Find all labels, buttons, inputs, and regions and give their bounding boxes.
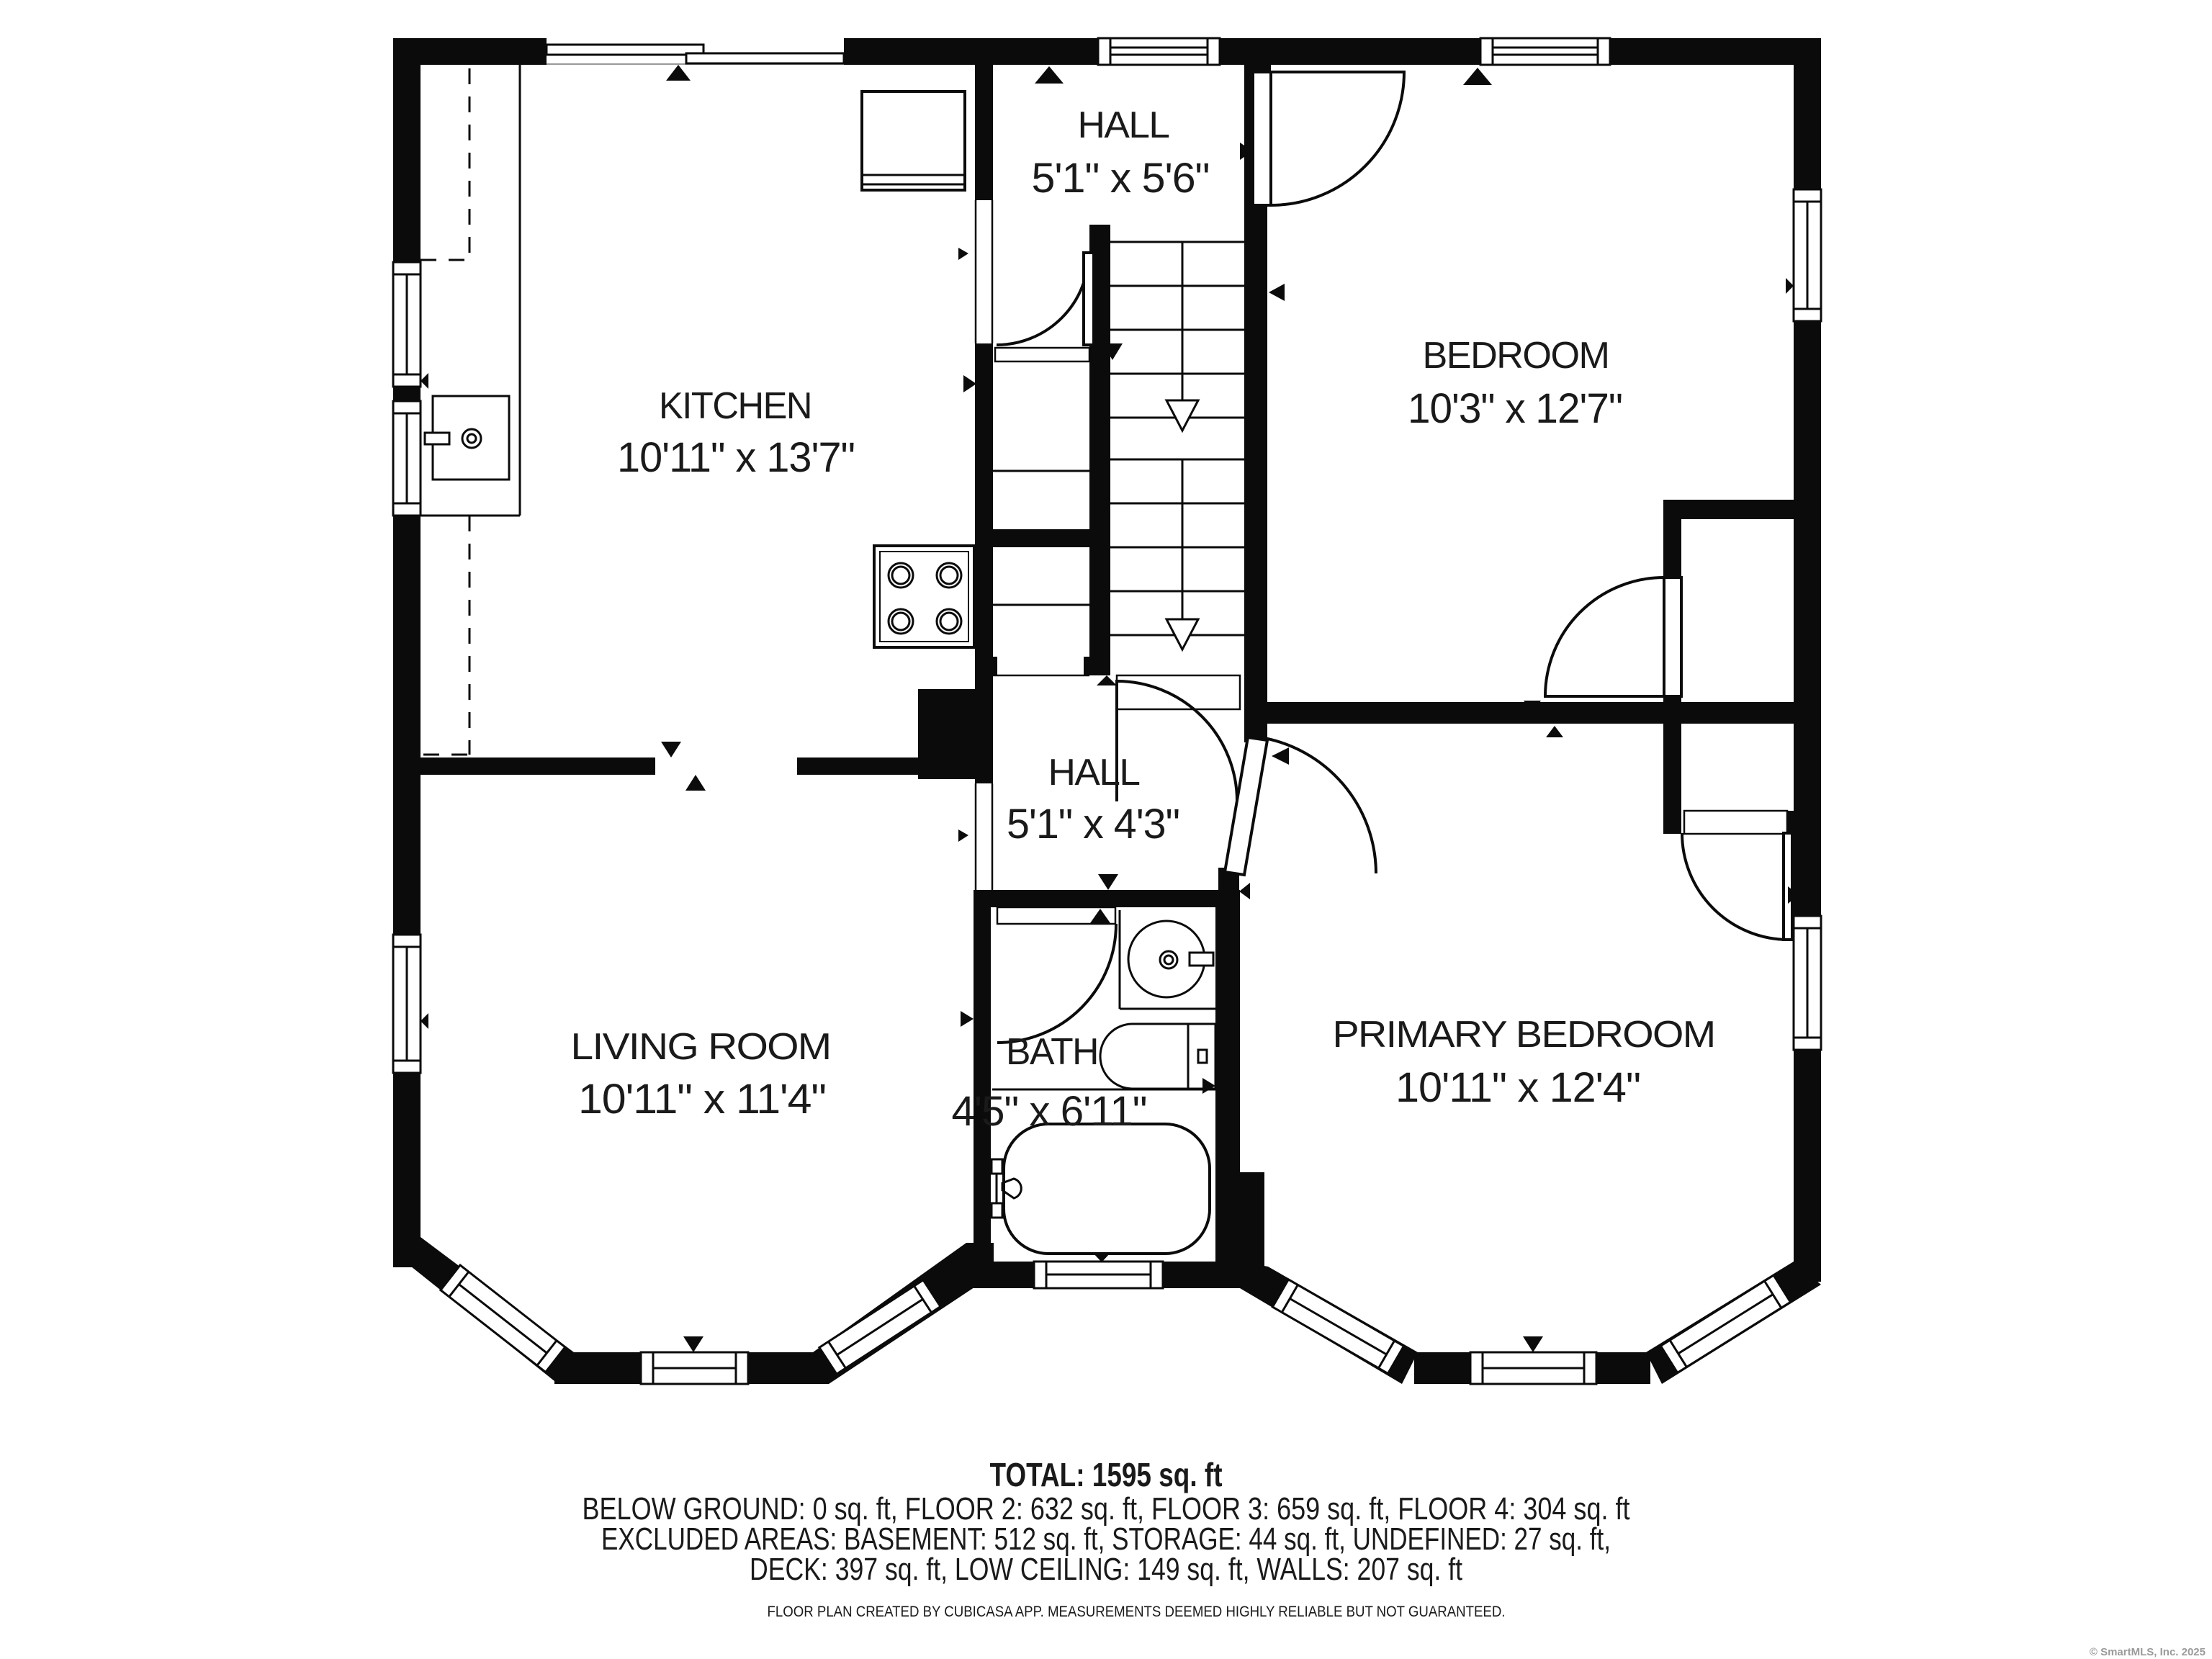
svg-text:KITCHEN: KITCHEN (659, 385, 811, 427)
svg-text:PRIMARY BEDROOM: PRIMARY BEDROOM (1333, 1014, 1715, 1056)
svg-text:LIVING ROOM: LIVING ROOM (571, 1026, 831, 1068)
svg-text:HALL: HALL (1078, 104, 1170, 146)
svg-text:TOTAL: 1595 sq. ft: TOTAL: 1595 sq. ft (990, 1456, 1223, 1493)
svg-text:HALL: HALL (1048, 752, 1141, 793)
svg-text:5'1" x 5'6": 5'1" x 5'6" (1032, 155, 1210, 202)
svg-text:DECK: 397 sq. ft, LOW CEILING:: DECK: 397 sq. ft, LOW CEILING: 149 sq. f… (750, 1552, 1462, 1587)
svg-text:5'1" x 4'3": 5'1" x 4'3" (1007, 801, 1179, 848)
svg-text:10'3" x 12'7": 10'3" x 12'7" (1408, 385, 1622, 432)
svg-text:BATH: BATH (1006, 1031, 1098, 1073)
svg-text:10'11" x 13'7": 10'11" x 13'7" (617, 434, 855, 481)
svg-text:4'5" x 6'11": 4'5" x 6'11" (952, 1088, 1147, 1135)
svg-text:FLOOR PLAN CREATED BY CUBICASA: FLOOR PLAN CREATED BY CUBICASA APP. MEAS… (768, 1604, 1506, 1620)
svg-text:BEDROOM: BEDROOM (1423, 335, 1609, 377)
svg-text:© SmartMLS, Inc. 2025: © SmartMLS, Inc. 2025 (2090, 1646, 2206, 1658)
svg-text:10'11" x 12'4": 10'11" x 12'4" (1395, 1064, 1640, 1111)
svg-text:10'11" x 11'4": 10'11" x 11'4" (578, 1076, 826, 1123)
